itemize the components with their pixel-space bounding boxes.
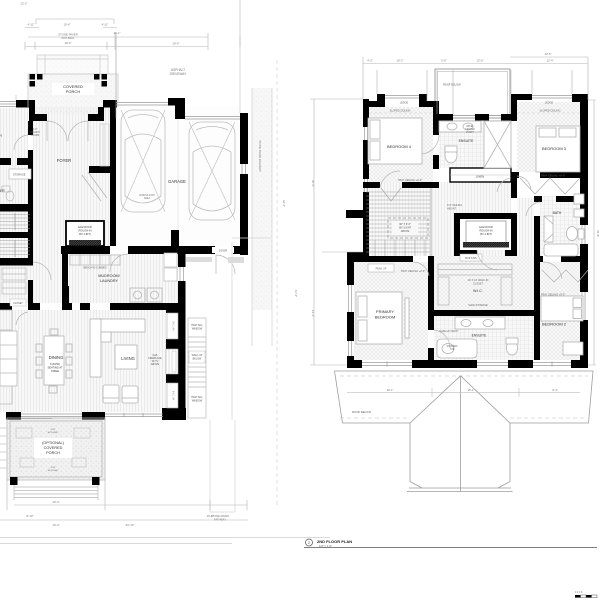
svg-text:34'-8": 34'-8" bbox=[596, 230, 600, 237]
svg-text:ROOF BELOW: ROOF BELOW bbox=[352, 410, 371, 414]
svg-text:10'-0": 10'-0" bbox=[64, 41, 71, 45]
svg-text:PATHWAY: PATHWAY bbox=[61, 36, 74, 40]
svg-text:TRAY CEILING +9'-0": TRAY CEILING +9'-0" bbox=[401, 270, 425, 273]
svg-text:2: 2 bbox=[308, 541, 310, 545]
svg-text:STORAGE: STORAGE bbox=[13, 173, 26, 177]
svg-text:COVERED: COVERED bbox=[44, 446, 63, 450]
svg-text:BATH: BATH bbox=[553, 211, 562, 215]
svg-text:8'-10": 8'-10" bbox=[26, 514, 33, 518]
svg-text:2ND FLOOR PLAN: 2ND FLOOR PLAN bbox=[317, 539, 352, 544]
svg-text:10'-0": 10'-0" bbox=[206, 514, 213, 518]
svg-text:LEDGE: LEDGE bbox=[400, 102, 409, 105]
svg-text:CENTER: CENTER bbox=[465, 129, 475, 131]
svg-text:6'-0": 6'-0" bbox=[33, 129, 38, 131]
svg-text:SAFE STORAGE: SAFE STORAGE bbox=[468, 304, 488, 307]
svg-text:TABLE: TABLE bbox=[51, 369, 59, 373]
svg-text:STONE PAVER: STONE PAVER bbox=[211, 514, 229, 518]
svg-text:BUILT-INS: BUILT-INS bbox=[465, 257, 477, 260]
svg-text:LAUNDRY: LAUNDRY bbox=[100, 279, 119, 283]
svg-text:6 (8-PR): 6 (8-PR) bbox=[50, 362, 60, 366]
svg-text:TRAY CEILING +9'-0": TRAY CEILING +9'-0" bbox=[541, 175, 565, 178]
svg-text:PATHWAY: PATHWAY bbox=[214, 518, 226, 522]
svg-text:GARAGE: GARAGE bbox=[168, 179, 186, 184]
svg-text:SLOPED CEILING: SLOPED CEILING bbox=[540, 110, 561, 113]
svg-text:TRAY CEILING +9'-0": TRAY CEILING +9'-0" bbox=[541, 294, 565, 297]
svg-text:22'-2": 22'-2" bbox=[20, 2, 27, 6]
svg-text:LEDGE: LEDGE bbox=[545, 102, 554, 105]
svg-text:W.I.C.: W.I.C. bbox=[473, 289, 483, 293]
svg-text:BELOW: BELOW bbox=[193, 357, 202, 360]
svg-text:12'-6": 12'-6" bbox=[294, 290, 298, 297]
svg-text:FRENCH: FRENCH bbox=[30, 132, 40, 134]
svg-text:10'-2": 10'-2" bbox=[396, 59, 403, 63]
svg-text:WINDOW: WINDOW bbox=[192, 399, 203, 402]
svg-text:WH/EL: WH/EL bbox=[466, 126, 474, 128]
svg-text:B-6.1 HA: B-6.1 HA bbox=[172, 391, 175, 401]
svg-text:ABOVE: ABOVE bbox=[401, 230, 410, 233]
svg-text:12'-0": 12'-0" bbox=[476, 59, 483, 63]
svg-text:WINDOW: WINDOW bbox=[192, 327, 203, 330]
svg-text:LIVING: LIVING bbox=[121, 356, 135, 361]
svg-text:10'-1": 10'-1" bbox=[386, 388, 393, 392]
svg-text:BENCH W/ CUBBIES: BENCH W/ CUBBIES bbox=[83, 267, 107, 270]
svg-text:SHOWER/: SHOWER/ bbox=[447, 346, 458, 348]
svg-text:ER: ER bbox=[0, 189, 5, 193]
svg-text:0 2 4 8: 0 2 4 8 bbox=[575, 591, 583, 594]
svg-text:BEDROOM 4: BEDROOM 4 bbox=[387, 144, 412, 149]
svg-text:4'X4': 4'X4' bbox=[51, 429, 56, 431]
svg-text:14'-2": 14'-2" bbox=[311, 310, 315, 317]
svg-text:(5X 4.8FT): (5X 4.8FT) bbox=[79, 232, 92, 236]
svg-text:DINING: DINING bbox=[49, 355, 64, 360]
svg-text:4'-2": 4'-2" bbox=[367, 59, 373, 63]
svg-text:SEATING AT: SEATING AT bbox=[48, 366, 63, 370]
svg-text:TUB: TUB bbox=[450, 349, 455, 351]
svg-text:CLOSET: CLOSET bbox=[13, 302, 23, 305]
svg-text:PRIMARY: PRIMARY bbox=[376, 309, 394, 314]
svg-text:4'-11": 4'-11" bbox=[102, 23, 109, 27]
svg-text:PORCH: PORCH bbox=[66, 89, 81, 94]
svg-text:HEIGHT: HEIGHT bbox=[447, 207, 457, 210]
svg-text:PORCH: PORCH bbox=[46, 451, 60, 455]
svg-text:MAKE-UP VANITY: MAKE-UP VANITY bbox=[439, 330, 459, 333]
svg-text:SKYLIGHT: SKYLIGHT bbox=[48, 432, 59, 434]
svg-text:ABOVE: ABOVE bbox=[151, 363, 160, 366]
svg-text:BEDROOM: BEDROOM bbox=[375, 314, 396, 319]
svg-text:DOOR: DOOR bbox=[219, 249, 227, 253]
svg-text:ELEVATOR: ELEVATOR bbox=[479, 225, 493, 229]
svg-text:16'-1": 16'-1" bbox=[467, 388, 474, 392]
svg-text:BEDROOM 2: BEDROOM 2 bbox=[542, 322, 567, 327]
svg-text:CLOSET: CLOSET bbox=[473, 282, 483, 285]
svg-text:TRAY CEILING +9'-0": TRAY CEILING +9'-0" bbox=[398, 179, 422, 182]
svg-text:12'-4": 12'-4" bbox=[546, 59, 553, 63]
svg-text:LINEN: LINEN bbox=[476, 175, 484, 179]
svg-text:VANITY: VANITY bbox=[466, 131, 475, 134]
svg-text:ROOF BELOW: ROOF BELOW bbox=[443, 83, 461, 87]
svg-text:B-6.1 HA: B-6.1 HA bbox=[172, 321, 175, 331]
svg-text:SLOPED CEILING: SLOPED CEILING bbox=[390, 110, 411, 113]
svg-text:MUDROOM/: MUDROOM/ bbox=[98, 274, 120, 278]
svg-text:16'-1": 16'-1" bbox=[113, 31, 120, 35]
svg-text:16'-4": 16'-4" bbox=[52, 523, 59, 527]
svg-text:DOORS: DOORS bbox=[31, 135, 40, 137]
svg-text:10'-5": 10'-5" bbox=[544, 52, 551, 56]
svg-text:ROUGH-IN: ROUGH-IN bbox=[78, 228, 91, 232]
svg-text:26'-10": 26'-10" bbox=[126, 523, 135, 527]
svg-text:(5X 4.8FT): (5X 4.8FT) bbox=[480, 232, 493, 236]
svg-text:COMPULSORY: COMPULSORY bbox=[139, 195, 156, 197]
svg-text:PEAK UP: PEAK UP bbox=[376, 267, 387, 270]
svg-text:20'-0": 20'-0" bbox=[311, 180, 315, 187]
svg-text:SKYLIGHT: SKYLIGHT bbox=[48, 470, 59, 472]
svg-text:4'-11": 4'-11" bbox=[28, 23, 35, 27]
svg-text:18'-0": 18'-0" bbox=[172, 42, 179, 46]
svg-text:9'-4": 9'-4" bbox=[552, 388, 558, 392]
svg-text:STONE PAVER WALKWAY: STONE PAVER WALKWAY bbox=[258, 140, 262, 172]
svg-text:4'X4': 4'X4' bbox=[51, 467, 56, 469]
svg-text:FOYER: FOYER bbox=[57, 158, 71, 163]
svg-text:ELEVATOR: ELEVATOR bbox=[78, 225, 92, 229]
svg-text:ENSUITE: ENSUITE bbox=[459, 139, 474, 143]
svg-text:BEDROOM 3: BEDROOM 3 bbox=[542, 146, 567, 151]
svg-text:10'-4": 10'-4" bbox=[52, 500, 59, 504]
svg-text:(OPTIONAL): (OPTIONAL) bbox=[42, 441, 64, 445]
svg-text:AREA: AREA bbox=[144, 197, 151, 200]
svg-text:34'-2": 34'-2" bbox=[282, 200, 286, 207]
svg-text:5'-6": 5'-6" bbox=[441, 59, 447, 63]
svg-text:10'-6": 10'-6" bbox=[63, 23, 70, 27]
svg-text:DRIVEWAY: DRIVEWAY bbox=[170, 72, 188, 76]
svg-text:ROUGH-IN: ROUGH-IN bbox=[479, 228, 492, 232]
svg-text:ENSUITE: ENSUITE bbox=[472, 334, 487, 338]
